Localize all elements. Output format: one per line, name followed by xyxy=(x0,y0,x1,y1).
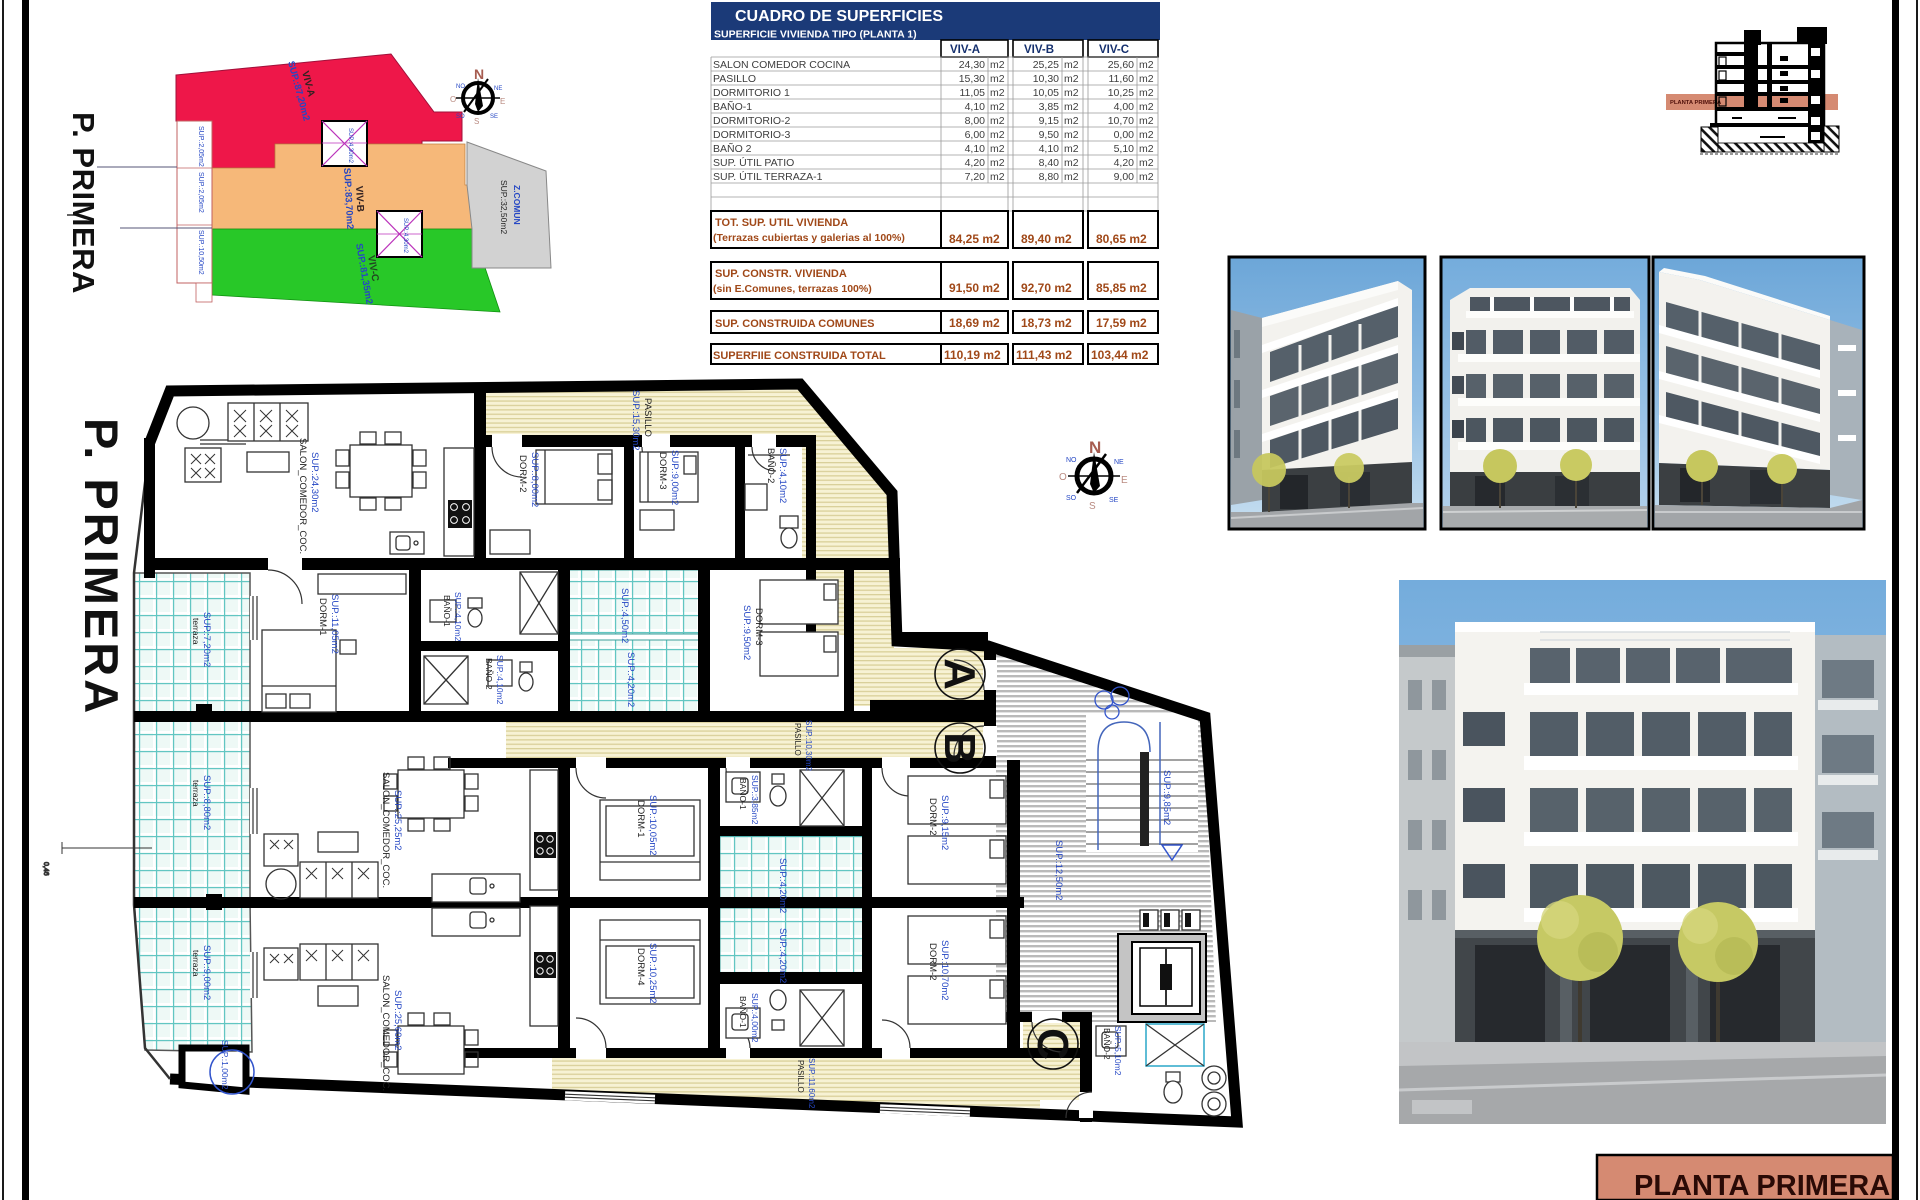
svg-text:SUP.:10,30m2: SUP.:10,30m2 xyxy=(804,720,813,772)
svg-text:SUP.:10,50m2: SUP.:10,50m2 xyxy=(197,230,204,275)
svg-text:0,00: 0,00 xyxy=(1114,129,1135,141)
svg-text:DORM-1: DORM-1 xyxy=(635,800,646,837)
svg-text:NO: NO xyxy=(456,84,465,90)
svg-text:18,73 m2: 18,73 m2 xyxy=(1021,316,1072,330)
svg-text:DORM-2: DORM-2 xyxy=(927,943,938,980)
svg-text:SUP.:10,70m2: SUP.:10,70m2 xyxy=(939,940,950,1001)
svg-text:SUP.:25,25m2: SUP.:25,25m2 xyxy=(392,790,403,851)
svg-text:BAÑO-1: BAÑO-1 xyxy=(738,996,748,1028)
svg-text:SALON_COMEDOR_COC.: SALON_COMEDOR_COC. xyxy=(297,438,308,554)
svg-text:SUP.:4,30m2: SUP.:4,30m2 xyxy=(347,128,353,164)
svg-text:m2: m2 xyxy=(990,101,1005,113)
svg-text:10,25: 10,25 xyxy=(1108,87,1134,99)
svg-text:m2: m2 xyxy=(1139,87,1154,99)
svg-text:NE: NE xyxy=(1114,459,1124,466)
svg-text:BAÑO-1: BAÑO-1 xyxy=(738,778,748,810)
svg-text:PASILLO: PASILLO xyxy=(796,1060,805,1093)
svg-text:N: N xyxy=(1089,438,1101,457)
svg-text:8,80: 8,80 xyxy=(1039,171,1060,183)
svg-text:85,85 m2: 85,85 m2 xyxy=(1096,281,1147,295)
svg-text:BAÑO 2: BAÑO 2 xyxy=(713,142,752,155)
svg-text:CUADRO DE SUPERFICIES: CUADRO DE SUPERFICIES xyxy=(735,8,943,25)
svg-text:DORM-1: DORM-1 xyxy=(317,598,328,635)
svg-text:BAÑO-2: BAÑO-2 xyxy=(484,658,494,690)
svg-text:SUP.:4,20m2: SUP.:4,20m2 xyxy=(625,652,636,707)
svg-text:84,25 m2: 84,25 m2 xyxy=(949,232,1000,246)
svg-text:SUP.:25,60m2: SUP.:25,60m2 xyxy=(392,990,403,1051)
svg-text:25,60: 25,60 xyxy=(1108,59,1134,71)
svg-text:110,19 m2: 110,19 m2 xyxy=(944,348,1001,362)
svg-text:SUP.:11,05m2: SUP.:11,05m2 xyxy=(329,594,340,654)
svg-text:SUP.:4,10m2: SUP.:4,10m2 xyxy=(495,655,505,705)
svg-text:SUP.:4,20m2: SUP.:4,20m2 xyxy=(777,858,788,913)
svg-text:(Terrazas cubiertas y galerias: (Terrazas cubiertas y galerias al 100%) xyxy=(713,232,905,244)
svg-text:m2: m2 xyxy=(990,73,1005,85)
svg-text:m2: m2 xyxy=(1064,115,1079,127)
svg-text:m2: m2 xyxy=(1139,157,1154,169)
svg-text:SUP.:12,50m2: SUP.:12,50m2 xyxy=(1053,840,1064,901)
svg-text:SUP. CONSTRUIDA COMUNES: SUP. CONSTRUIDA COMUNES xyxy=(715,318,875,330)
svg-text:m2: m2 xyxy=(1064,101,1079,113)
svg-text:SUP. CONSTR. VIVIENDA: SUP. CONSTR. VIVIENDA xyxy=(715,268,847,280)
svg-text:SO: SO xyxy=(1066,495,1077,502)
svg-text:m2: m2 xyxy=(990,171,1005,183)
svg-text:SUP.:8,00m2: SUP.:8,00m2 xyxy=(529,452,540,507)
svg-text:SUP.:4,10m2: SUP.:4,10m2 xyxy=(453,592,463,642)
svg-text:VIV-C: VIV-C xyxy=(1099,44,1129,56)
svg-text:m2: m2 xyxy=(1064,73,1079,85)
svg-text:SUP.:5,10m2: SUP.:5,10m2 xyxy=(1113,1026,1123,1076)
svg-text:SE: SE xyxy=(490,114,498,120)
svg-text:4,20: 4,20 xyxy=(965,157,986,169)
svg-text:24,30: 24,30 xyxy=(959,59,985,71)
svg-text:SUP.:4,30m2: SUP.:4,30m2 xyxy=(402,218,408,254)
svg-text:SUP.:9,00m2: SUP.:9,00m2 xyxy=(201,945,212,1000)
svg-text:PLANTA PRIMERA: PLANTA PRIMERA xyxy=(1670,100,1722,106)
svg-text:m2: m2 xyxy=(1139,143,1154,155)
svg-text:m2: m2 xyxy=(1064,129,1079,141)
svg-text:9,15: 9,15 xyxy=(1039,115,1060,127)
svg-text:SUPERFICIE VIVIENDA TIPO (PLA: SUPERFICIE VIVIENDA TIPO (PLANTA 1) xyxy=(714,29,917,41)
svg-text:m2: m2 xyxy=(990,115,1005,127)
svg-text:10,05: 10,05 xyxy=(1033,87,1059,99)
svg-text:SUP. ÚTIL TERRAZA-1: SUP. ÚTIL TERRAZA-1 xyxy=(713,170,823,183)
svg-text:PASILLO: PASILLO xyxy=(793,723,802,756)
svg-text:terraza: terraza xyxy=(191,780,201,807)
svg-text:9,00: 9,00 xyxy=(1114,171,1135,183)
svg-text:SUP.:2,05m2: SUP.:2,05m2 xyxy=(197,126,204,167)
svg-text:SUP.:4,50m2: SUP.:4,50m2 xyxy=(619,588,630,643)
svg-text:8,40: 8,40 xyxy=(1039,157,1060,169)
svg-text:P. PRIMERA: P. PRIMERA xyxy=(66,112,101,294)
svg-text:9,50: 9,50 xyxy=(1039,129,1060,141)
svg-text:DORM-2: DORM-2 xyxy=(927,798,938,835)
svg-text:18,69 m2: 18,69 m2 xyxy=(949,316,1000,330)
svg-text:m2: m2 xyxy=(1064,87,1079,99)
svg-text:BAÑO-2: BAÑO-2 xyxy=(765,448,776,483)
svg-text:3,85: 3,85 xyxy=(1039,101,1060,113)
svg-text:PASILLO: PASILLO xyxy=(713,73,756,85)
svg-text:25,25: 25,25 xyxy=(1033,59,1059,71)
svg-text:SUP.:1,00m2: SUP.:1,00m2 xyxy=(220,1040,230,1090)
svg-text:O: O xyxy=(450,95,456,104)
svg-text:SUP. ÚTIL PATIO: SUP. ÚTIL PATIO xyxy=(713,156,794,169)
svg-text:E: E xyxy=(500,97,505,106)
svg-text:4,10: 4,10 xyxy=(1039,143,1060,155)
svg-text:SE: SE xyxy=(1109,497,1119,504)
svg-text:PLANTA PRIMERA: PLANTA PRIMERA xyxy=(1634,1170,1890,1200)
svg-text:BAÑO-1: BAÑO-1 xyxy=(713,100,752,113)
svg-text:m2: m2 xyxy=(1139,73,1154,85)
svg-text:m2: m2 xyxy=(990,87,1005,99)
svg-text:91,50 m2: 91,50 m2 xyxy=(949,281,1000,295)
svg-text:m2: m2 xyxy=(1139,115,1154,127)
svg-text:7,20: 7,20 xyxy=(965,171,986,183)
svg-text:DORMITORIO-3: DORMITORIO-3 xyxy=(713,129,791,141)
svg-text:VIV-A: VIV-A xyxy=(950,44,980,56)
svg-text:SO: SO xyxy=(456,114,465,120)
svg-text:4,10: 4,10 xyxy=(965,143,986,155)
svg-text:m2: m2 xyxy=(990,59,1005,71)
svg-text:0,46: 0,46 xyxy=(42,862,49,876)
svg-text:11,05: 11,05 xyxy=(960,87,986,99)
svg-text:SUP.:11,60m2: SUP.:11,60m2 xyxy=(807,1058,816,1109)
svg-text:m2: m2 xyxy=(990,143,1005,155)
svg-text:DORM-2: DORM-2 xyxy=(517,455,528,492)
svg-text:m2: m2 xyxy=(1139,101,1154,113)
svg-text:SUP.:7,20m2: SUP.:7,20m2 xyxy=(201,612,212,667)
svg-text:6,00: 6,00 xyxy=(965,129,986,141)
svg-text:SUP.:9,15m2: SUP.:9,15m2 xyxy=(939,795,950,850)
svg-text:DORM-3: DORM-3 xyxy=(657,452,668,489)
svg-text:Z.COMUN: Z.COMUN xyxy=(512,185,522,225)
svg-text:DORM-4: DORM-4 xyxy=(635,948,646,985)
svg-text:S: S xyxy=(1089,501,1096,512)
svg-text:(sin E.Comunes, terrazas 100%): (sin E.Comunes, terrazas 100%) xyxy=(713,283,872,295)
svg-text:m2: m2 xyxy=(1139,129,1154,141)
svg-text:SALON_COMEDOR_COC.: SALON_COMEDOR_COC. xyxy=(380,975,391,1091)
svg-text:DORM-3: DORM-3 xyxy=(753,608,764,645)
svg-text:SUP.:10,05m2: SUP.:10,05m2 xyxy=(647,795,658,856)
svg-text:SUP.:9,00m2: SUP.:9,00m2 xyxy=(669,450,680,505)
svg-text:8,00: 8,00 xyxy=(965,115,986,127)
svg-text:m2: m2 xyxy=(1064,59,1079,71)
svg-text:SALON_COMEDOR_COC.: SALON_COMEDOR_COC. xyxy=(380,772,391,888)
svg-text:m2: m2 xyxy=(1064,171,1079,183)
svg-text:92,70 m2: 92,70 m2 xyxy=(1021,281,1072,295)
svg-text:11,60: 11,60 xyxy=(1109,73,1135,85)
svg-text:10,30: 10,30 xyxy=(1033,73,1059,85)
svg-text:SUPERFIIE CONSTRUIDA TOTAL: SUPERFIIE CONSTRUIDA TOTAL xyxy=(713,350,886,362)
svg-text:15,30: 15,30 xyxy=(959,73,985,85)
svg-text:PASILLO: PASILLO xyxy=(642,398,653,437)
svg-text:SUP.:4,00m2: SUP.:4,00m2 xyxy=(750,993,760,1043)
svg-text:SUP.:8,80m2: SUP.:8,80m2 xyxy=(201,775,212,830)
svg-text:m2: m2 xyxy=(1139,171,1154,183)
svg-text:4,10: 4,10 xyxy=(965,101,986,113)
svg-text:m2: m2 xyxy=(990,157,1005,169)
svg-text:m2: m2 xyxy=(1064,157,1079,169)
svg-text:4,20: 4,20 xyxy=(1114,157,1135,169)
svg-text:m2: m2 xyxy=(990,129,1005,141)
svg-text:SUP.:9,50m2: SUP.:9,50m2 xyxy=(741,605,752,660)
svg-text:B: B xyxy=(935,732,984,764)
svg-text:terraza: terraza xyxy=(191,950,201,977)
svg-text:C: C xyxy=(1028,1028,1077,1060)
svg-text:DORMITORIO 1: DORMITORIO 1 xyxy=(713,87,790,99)
svg-text:SUP.:4,20m2: SUP.:4,20m2 xyxy=(777,928,788,983)
svg-text:BAÑO-1: BAÑO-1 xyxy=(442,595,452,627)
svg-text:m2: m2 xyxy=(1139,59,1154,71)
svg-text:NO: NO xyxy=(1066,457,1077,464)
svg-text:17,59 m2: 17,59 m2 xyxy=(1096,316,1147,330)
svg-text:BAÑO-2: BAÑO-2 xyxy=(1102,1028,1112,1060)
svg-text:O: O xyxy=(1059,472,1067,483)
svg-text:SUP.:2,05m2: SUP.:2,05m2 xyxy=(197,172,204,213)
svg-text:A: A xyxy=(935,658,984,690)
svg-text:terraza: terraza xyxy=(191,618,201,645)
svg-text:VIV-B: VIV-B xyxy=(1024,44,1054,56)
svg-text:SUP.:32,50m2: SUP.:32,50m2 xyxy=(499,180,509,234)
svg-text:SUP.:15,30m2: SUP.:15,30m2 xyxy=(630,390,641,451)
svg-text:SUP.:24,30m2: SUP.:24,30m2 xyxy=(309,452,320,513)
svg-text:89,40 m2: 89,40 m2 xyxy=(1021,232,1072,246)
svg-text:80,65 m2: 80,65 m2 xyxy=(1096,232,1147,246)
svg-text:103,44 m2: 103,44 m2 xyxy=(1091,348,1149,362)
svg-text:m2: m2 xyxy=(1064,143,1079,155)
svg-text:111,43 m2: 111,43 m2 xyxy=(1016,348,1072,362)
svg-text:4,00: 4,00 xyxy=(1114,101,1135,113)
svg-text:SUP.:4,10m2: SUP.:4,10m2 xyxy=(777,448,788,503)
svg-text:SUP.:3,85m2: SUP.:3,85m2 xyxy=(750,775,760,825)
svg-text:10,70: 10,70 xyxy=(1108,115,1134,127)
svg-text:SALON COMEDOR COCINA: SALON COMEDOR COCINA xyxy=(713,59,850,71)
svg-text:S: S xyxy=(474,117,479,126)
svg-text:TOT. SUP. UTIL VIVIENDA: TOT. SUP. UTIL VIVIENDA xyxy=(715,217,848,229)
svg-text:SUP.:10,25m2: SUP.:10,25m2 xyxy=(647,943,658,1004)
svg-text:5,10: 5,10 xyxy=(1114,143,1135,155)
svg-text:P. PRIMERA: P. PRIMERA xyxy=(75,418,128,716)
svg-text:E: E xyxy=(1121,475,1128,486)
svg-text:NE: NE xyxy=(494,86,502,92)
svg-text:SUP.:9,85m2: SUP.:9,85m2 xyxy=(1161,770,1172,825)
svg-text:N: N xyxy=(474,66,484,82)
svg-text:DORMITORIO-2: DORMITORIO-2 xyxy=(713,115,791,127)
